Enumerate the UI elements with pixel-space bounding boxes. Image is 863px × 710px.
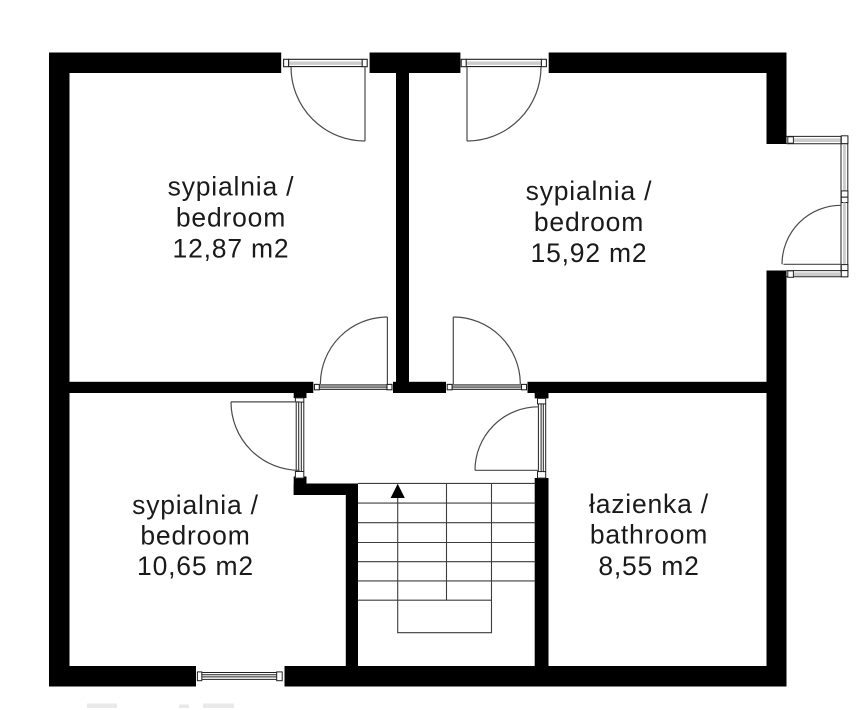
- svg-text:bathroom: bathroom: [590, 520, 708, 550]
- svg-text:sypialnia /: sypialnia /: [132, 490, 259, 520]
- svg-text:10,65 m2: 10,65 m2: [137, 551, 254, 581]
- svg-text:8,55 m2: 8,55 m2: [598, 551, 699, 581]
- svg-text:12,87 m2: 12,87 m2: [173, 234, 290, 264]
- svg-text:sypialnia /: sypialnia /: [526, 176, 653, 206]
- svg-text:łazienka /: łazienka /: [589, 489, 709, 519]
- svg-text:bedroom: bedroom: [140, 521, 250, 551]
- svg-text:15,92 m2: 15,92 m2: [531, 238, 648, 268]
- svg-text:bedroom: bedroom: [534, 207, 644, 237]
- svg-text:sypialnia /: sypialnia /: [168, 172, 295, 202]
- svg-text:bedroom: bedroom: [176, 203, 286, 233]
